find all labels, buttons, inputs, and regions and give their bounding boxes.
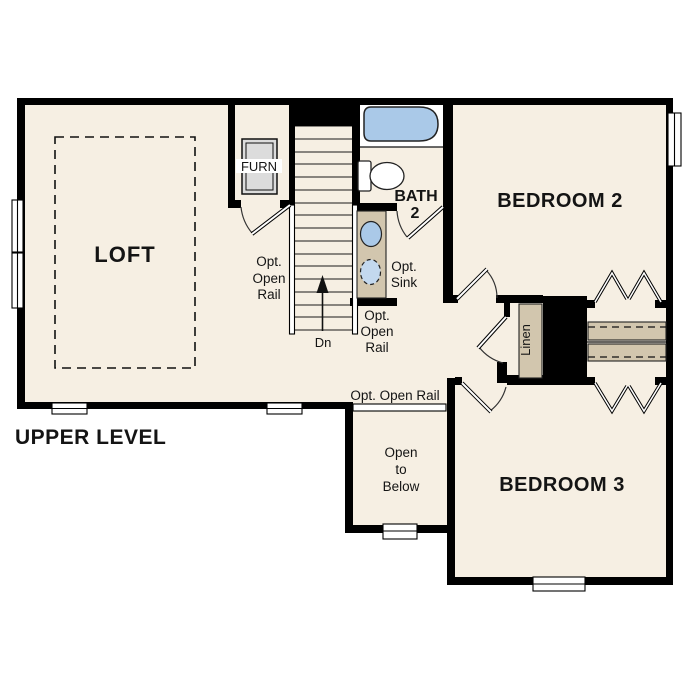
toilet-tank — [358, 161, 371, 191]
wall-furn-bottom-left-stub — [228, 200, 241, 208]
bedroom3-closet-shelf — [588, 344, 666, 361]
opt-sink-label-line1: Opt. — [391, 259, 417, 274]
floor-plan-page: UPPER LEVEL LOFT BEDROOM 2 BEDROOM 3 BAT… — [0, 0, 687, 687]
bath2-label-line2: 2 — [411, 205, 420, 222]
sink — [361, 222, 382, 247]
furnace-label: FURN — [241, 159, 277, 174]
opt-open-rail-inline-label: Opt. Open Rail — [350, 388, 439, 403]
bath2-label-line1: BATH — [394, 188, 437, 205]
wall-linen-top-jamb — [504, 303, 510, 317]
stair-rail-left — [290, 205, 295, 334]
opt-sink-label-line2: Sink — [391, 275, 418, 290]
wall-bedroom2-south-a — [446, 295, 458, 303]
bedroom2-closet-shelf — [588, 322, 666, 340]
stairs-down-label: Dn — [315, 335, 332, 350]
wall-bath-south — [352, 203, 397, 211]
open-rail-horizontal — [353, 404, 446, 411]
floor-plan-drawing: UPPER LEVEL LOFT BEDROOM 2 BEDROOM 3 BAT… — [0, 0, 687, 687]
toilet-bowl — [370, 163, 404, 190]
wall-bedroom2-south-b — [496, 295, 543, 303]
opt-open-rail-right-line2: Open — [360, 324, 393, 339]
optional-sink — [361, 260, 381, 285]
wall-open-below-left — [345, 406, 353, 533]
open-to-below-line3: Below — [383, 479, 420, 494]
wall-right — [666, 98, 673, 585]
open-to-below-line1: Open — [384, 445, 417, 460]
opt-open-rail-left-line2: Open — [252, 271, 285, 286]
opt-open-rail-left-line3: Rail — [257, 287, 280, 302]
open-to-below-line2: to — [395, 462, 406, 477]
loft-label: LOFT — [94, 242, 155, 267]
opt-open-rail-left-line1: Opt. — [256, 254, 282, 269]
opt-open-rail-right-line3: Rail — [365, 340, 388, 355]
wall-bedroom3-top-a — [455, 377, 462, 385]
wall-stair-head — [289, 98, 360, 126]
linen-label: Linen — [518, 324, 533, 356]
wall-furn-left — [228, 98, 235, 208]
bedroom3-label: BEDROOM 3 — [499, 474, 625, 496]
bathtub — [364, 107, 438, 141]
opt-open-rail-right-line1: Opt. — [364, 308, 390, 323]
page-title: UPPER LEVEL — [15, 426, 166, 449]
bedroom2-label: BEDROOM 2 — [497, 190, 623, 212]
wall-chase — [543, 296, 587, 383]
wall-bath-bedroom2-divider — [443, 98, 453, 303]
wall-bedroom3-left — [447, 378, 455, 585]
